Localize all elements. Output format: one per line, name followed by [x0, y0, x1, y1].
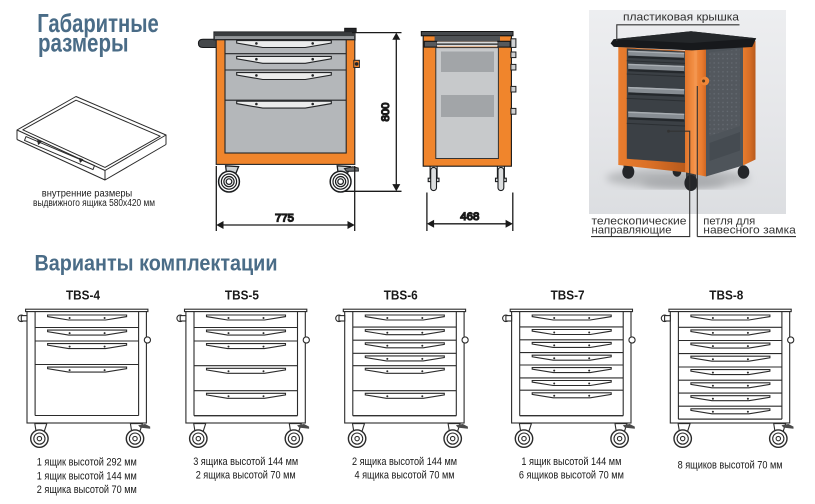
svg-text:направляющие: направляющие	[592, 225, 672, 237]
svg-text:1 ящик высотой 144 мм: 1 ящик высотой 144 мм	[37, 470, 137, 482]
svg-text:TBS-7: TBS-7	[551, 288, 585, 302]
svg-text:2 ящика высотой 70 мм: 2 ящика высотой 70 мм	[37, 484, 137, 496]
svg-text:468: 468	[460, 211, 479, 223]
svg-text:TBS-5: TBS-5	[225, 288, 259, 302]
svg-text:4 ящика высотой 70 мм: 4 ящика высотой 70 мм	[355, 470, 455, 482]
svg-text:8 ящиков высотой 70 мм: 8 ящиков высотой 70 мм	[678, 460, 783, 472]
svg-text:2 ящика высотой 70 мм: 2 ящика высотой 70 мм	[196, 470, 296, 482]
svg-text:2 ящика высотой 144 мм: 2 ящика высотой 144 мм	[352, 456, 457, 468]
svg-text:1 ящик высотой 292 мм: 1 ящик высотой 292 мм	[37, 457, 137, 469]
svg-text:1 ящик высотой 144 мм: 1 ящик высотой 144 мм	[521, 456, 621, 468]
svg-text:3 ящика высотой 144 мм: 3 ящика высотой 144 мм	[193, 456, 298, 468]
svg-text:выдвижного ящика 580х420 мм: выдвижного ящика 580х420 мм	[33, 198, 155, 209]
svg-text:6 ящиков высотой 70 мм: 6 ящиков высотой 70 мм	[519, 470, 624, 482]
svg-text:775: 775	[275, 212, 294, 224]
svg-text:Варианты комплектации: Варианты комплектации	[35, 250, 278, 275]
svg-text:800: 800	[380, 102, 392, 121]
svg-text:TBS-8: TBS-8	[709, 288, 743, 302]
svg-text:навесного замка: навесного замка	[703, 225, 796, 237]
svg-text:TBS-4: TBS-4	[66, 288, 100, 302]
svg-text:размеры: размеры	[38, 27, 129, 57]
svg-text:TBS-6: TBS-6	[384, 288, 418, 302]
svg-text:пластиковая крышка: пластиковая крышка	[623, 12, 740, 24]
